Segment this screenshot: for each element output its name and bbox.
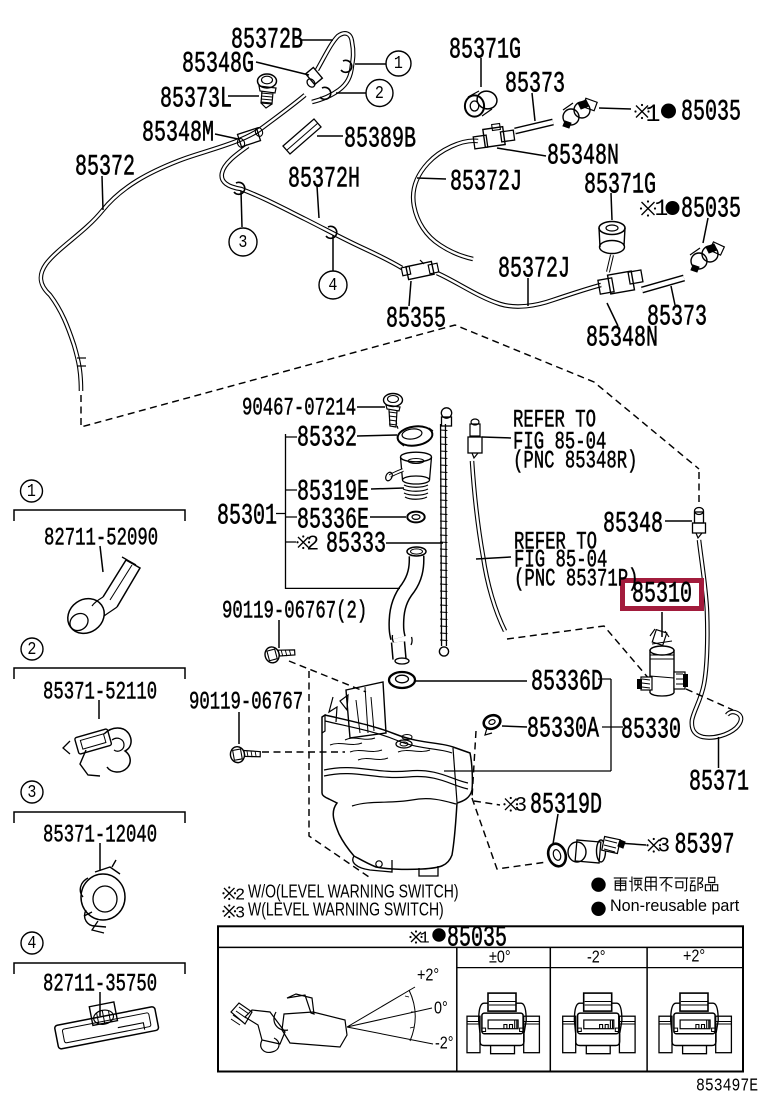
svg-text:3: 3 xyxy=(658,836,671,859)
svg-text:3: 3 xyxy=(235,905,245,924)
svg-text:1: 1 xyxy=(420,929,430,948)
svg-text:1: 1 xyxy=(646,100,661,129)
svg-text:3: 3 xyxy=(515,795,528,818)
svg-text:2: 2 xyxy=(235,887,245,906)
